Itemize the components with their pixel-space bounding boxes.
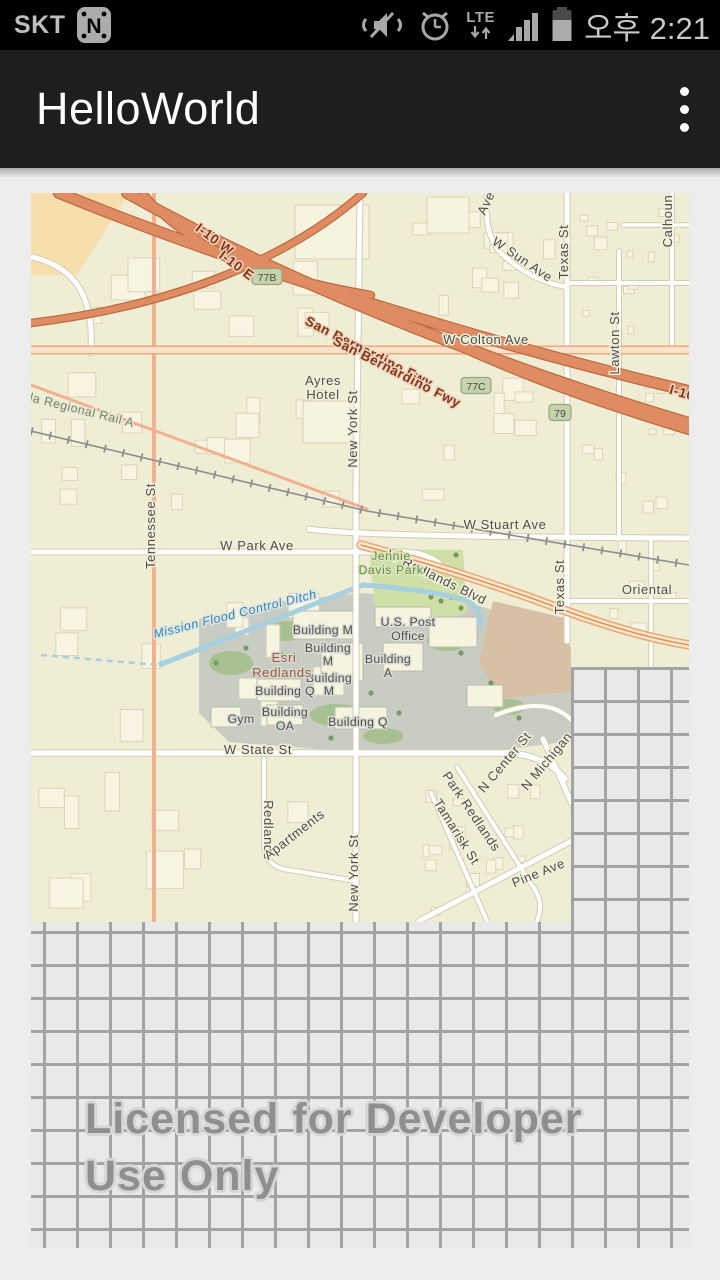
- map-label: M: [323, 654, 334, 668]
- map-label: Building Q: [328, 715, 388, 729]
- map-label: Building M: [293, 623, 353, 637]
- map-label: Oriental: [622, 582, 672, 597]
- svg-text:79: 79: [554, 408, 566, 420]
- map-label: Lawton St: [607, 311, 622, 374]
- map-label: Building: [306, 671, 352, 685]
- map-label: W Park Ave: [220, 538, 294, 553]
- app-bar-shadow: [0, 168, 720, 178]
- map-label: Ayres: [305, 373, 341, 388]
- signal-strength-icon: [506, 8, 540, 42]
- map-label: OA: [276, 719, 295, 733]
- exit-badge: 77C: [461, 378, 491, 394]
- map-label: Hotel: [306, 387, 339, 402]
- map-label: Building Q: [255, 684, 315, 698]
- lte-icon: LTE: [466, 10, 495, 40]
- map-label: U.S. Post: [381, 615, 436, 629]
- map-label: Office: [391, 629, 425, 643]
- map-label: Texas St: [552, 560, 567, 615]
- map-label: Esri: [272, 650, 297, 665]
- page-title: HelloWorld: [36, 50, 260, 168]
- map-label: New York St: [345, 390, 360, 467]
- alarm-icon: [415, 6, 455, 44]
- map-label: Jennie: [371, 549, 411, 563]
- vibrate-mute-icon: [360, 6, 404, 44]
- clock: 오후 2:21: [584, 3, 710, 48]
- map-label: Texas St: [556, 225, 571, 280]
- map-label: Building: [305, 641, 351, 655]
- map-label: Davis Park: [359, 563, 424, 577]
- map-label: A: [384, 666, 393, 680]
- status-bar: SKT N LTE: [0, 0, 720, 50]
- map-label: W Colton Ave: [443, 332, 529, 347]
- svg-text:77B: 77B: [258, 272, 277, 284]
- overflow-menu-icon[interactable]: [662, 50, 706, 168]
- map-label: M: [324, 684, 335, 698]
- map-label: Tennessee St: [143, 483, 158, 569]
- map-label: Gym: [228, 712, 255, 726]
- map-canvas: 77B77C79 I-10 WI-10 ESan Bernardino FwyS…: [31, 193, 689, 1248]
- battery-icon: [551, 7, 573, 43]
- map-label: Calhoun: [660, 195, 675, 248]
- app-bar: HelloWorld: [0, 50, 720, 168]
- map-label: Building: [365, 652, 411, 666]
- map-label: Building: [262, 705, 308, 719]
- carrier-label: SKT: [14, 11, 66, 40]
- nfc-icon: N: [75, 4, 113, 46]
- map-label: New York St: [346, 834, 361, 911]
- svg-text:N: N: [86, 15, 101, 38]
- map-label: W State St: [224, 742, 292, 757]
- exit-badge: 79: [549, 405, 571, 421]
- map-view[interactable]: 77B77C79 I-10 WI-10 ESan Bernardino FwyS…: [31, 193, 689, 1248]
- map-label: Redlands: [252, 665, 312, 680]
- svg-text:77C: 77C: [466, 381, 486, 393]
- map-label: W Stuart Ave: [464, 517, 547, 532]
